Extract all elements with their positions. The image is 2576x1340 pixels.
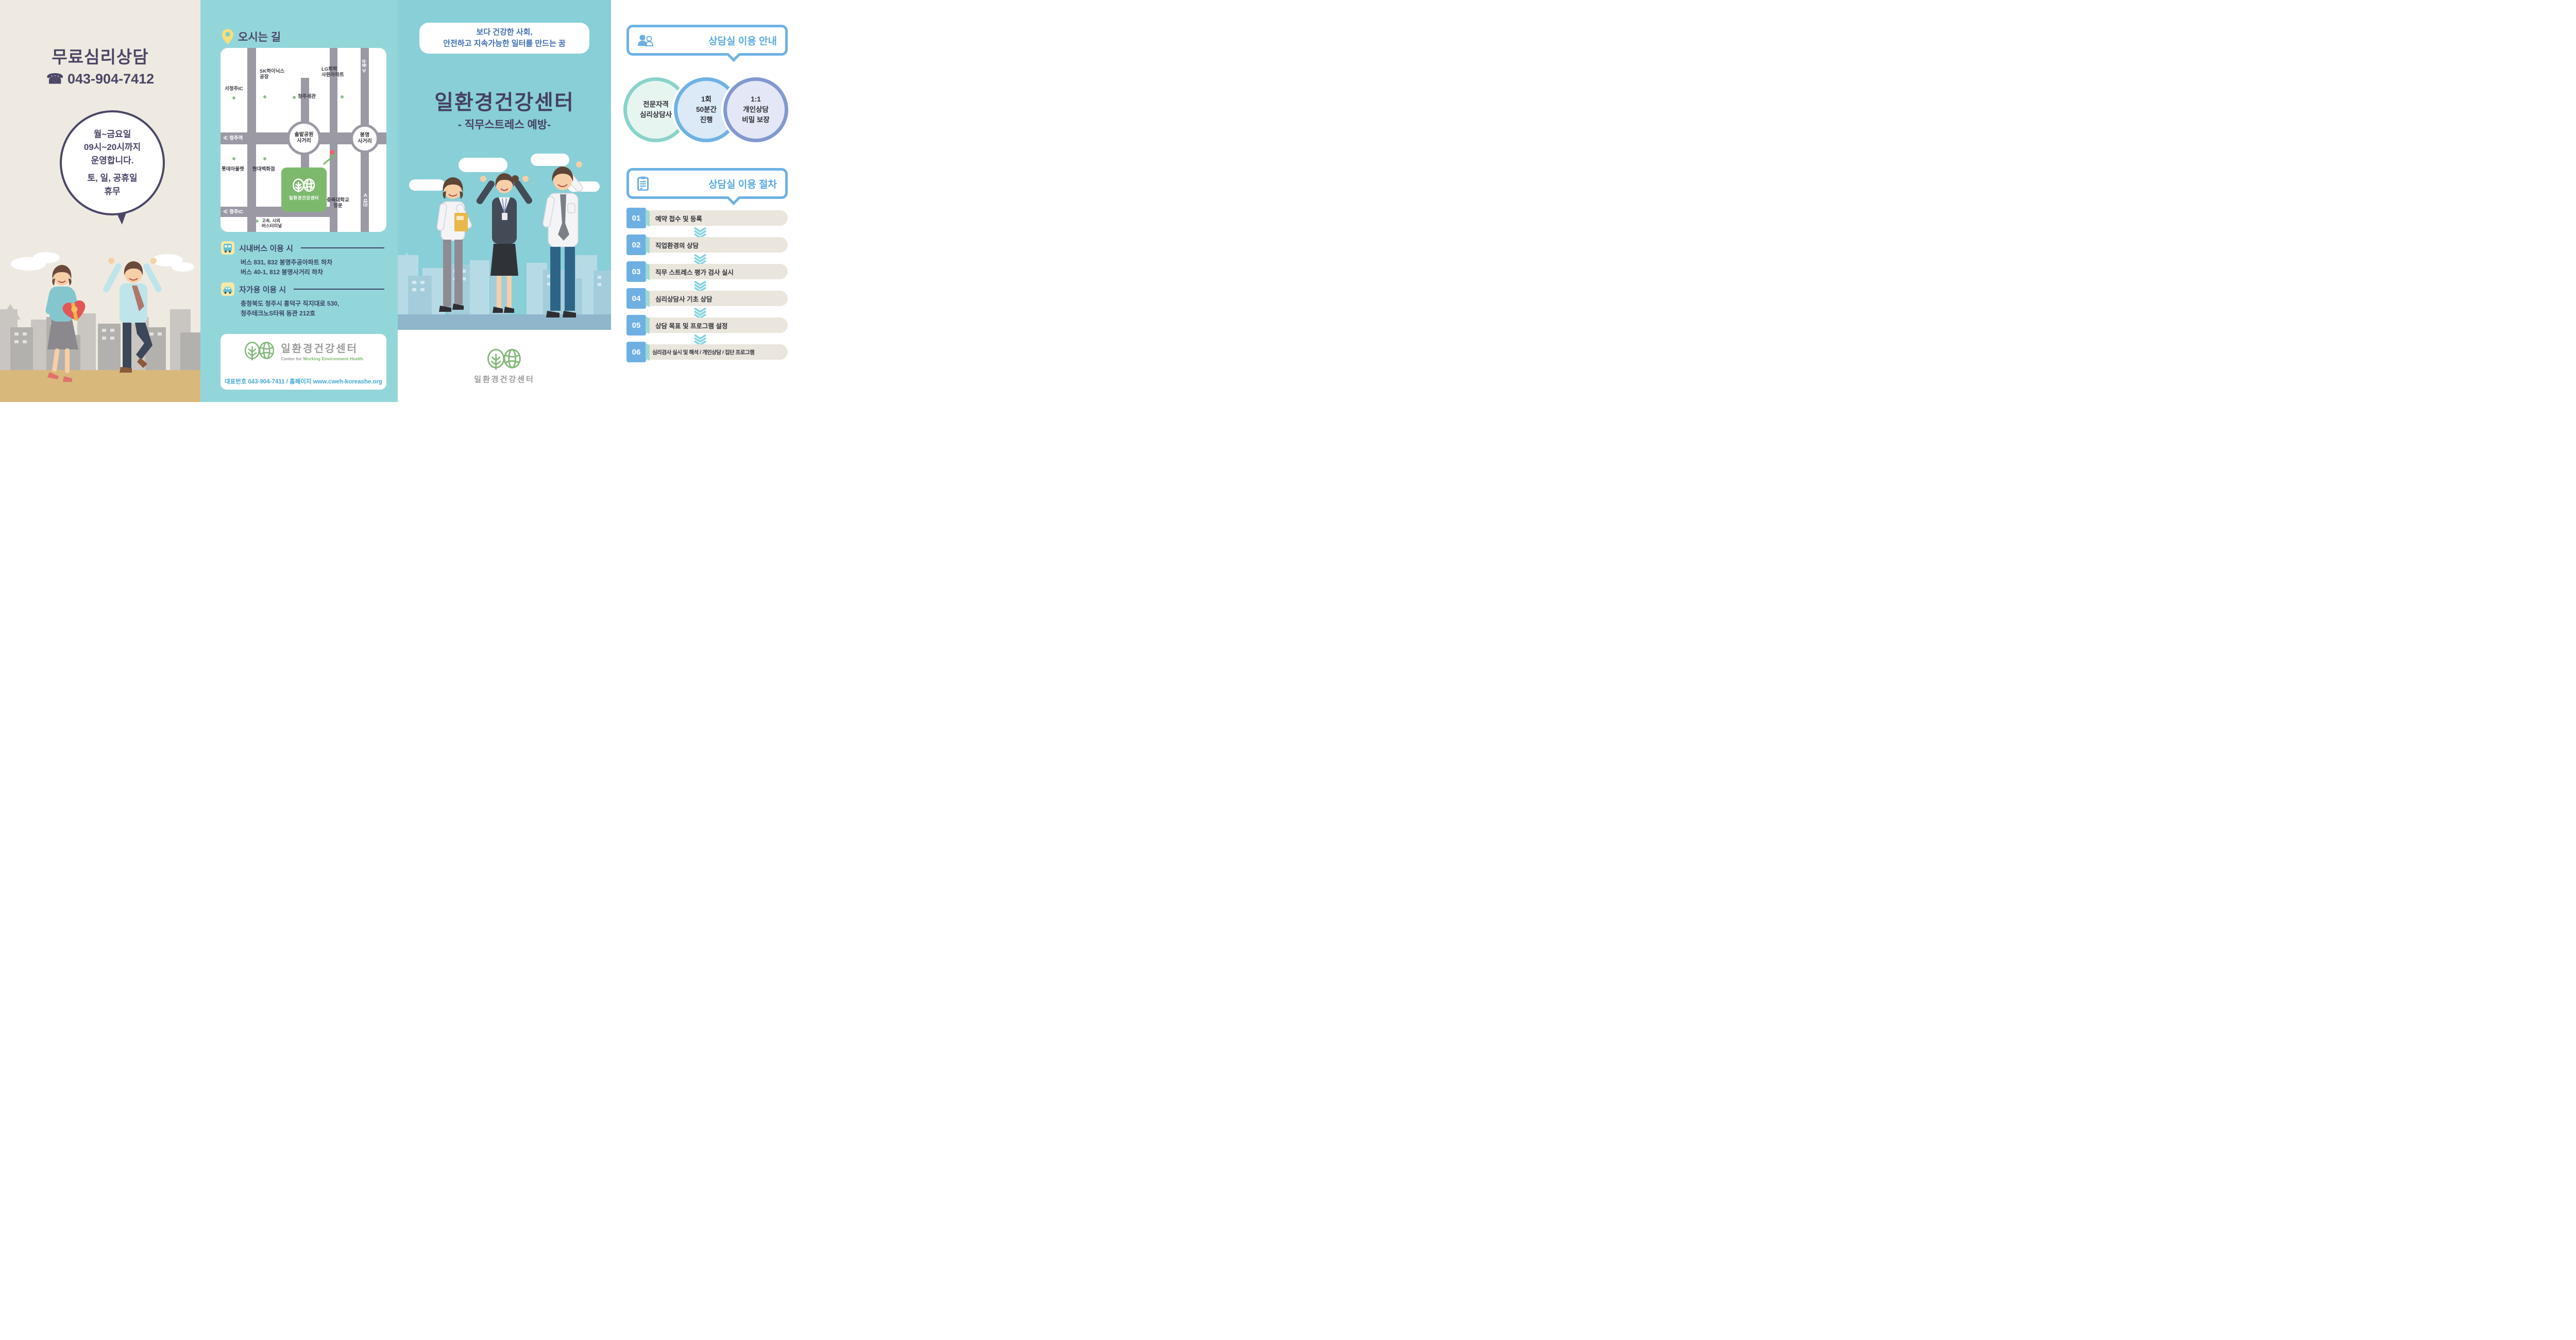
step-number-badge: 02 <box>626 234 646 255</box>
step-number-badge: 01 <box>626 208 646 228</box>
address-line: 청주테크노S타워 동관 212호 <box>241 309 315 317</box>
org-contact-line: 대표번호 043-904-7411 / 홈페이지 www.cweh-koreas… <box>221 377 386 386</box>
map-location-pin <box>330 150 334 155</box>
map-dot <box>232 157 235 160</box>
bus-info-line: 버스 831, 832 봉명주공아파트 하차 <box>241 258 332 266</box>
center-logo-icon <box>292 178 316 193</box>
chevron-down-icon <box>693 227 707 238</box>
map-label-line: 버스터미널 <box>262 223 282 228</box>
org-name-korean: 일환경건강센터 <box>281 340 363 355</box>
directions-title: 오시는 길 <box>238 29 281 44</box>
map-label-terminal: 고속. 시외 버스터미널 <box>262 218 282 228</box>
slogan-line: 보다 건강한 사회, <box>419 27 589 39</box>
map-road-direction-south: ≪ 대전 <box>361 189 368 211</box>
map-dot <box>341 95 344 98</box>
chevron-down-icon <box>693 308 707 318</box>
map-dot <box>293 96 296 99</box>
step-row-1: 예약 접수 및 등록 01 <box>626 210 788 226</box>
section-header-info: 상담실 이용 안내 <box>626 25 788 56</box>
feature-line: 비밀 보장 <box>727 115 785 125</box>
people-icon <box>637 34 654 46</box>
brochure-page: 무료심리상담 ☎ 043-904-7412 월~금요일 09시~20시까지 운영… <box>0 0 796 402</box>
org-name-english: Center for Working Environment Health <box>281 356 363 361</box>
map: ≪ 충주 ≪ 대전 ≪ 청주역 ≪ 청주IC 솔밭공원 사거리 봉명 사거리 서… <box>221 48 386 232</box>
tree-globe-logo-icon <box>486 348 522 371</box>
map-label-line: 고속. 시외 <box>262 218 282 223</box>
map-label-university: 충북대학교 정문 <box>327 197 349 209</box>
divider-line <box>301 247 384 249</box>
step-label: 예약 접수 및 등록 <box>626 210 788 226</box>
map-label-line: 공장 <box>260 74 284 80</box>
panel-directions: 오시는 길 ≪ 충주 ≪ 대전 ≪ 청주역 ≪ 청주IC 솔밭공원 사거리 봉명… <box>200 0 398 402</box>
clipboard-icon <box>637 176 649 191</box>
map-road-direction-ic: ≪ 청주IC <box>223 209 243 215</box>
tree-globe-logo-icon <box>244 341 276 361</box>
slogan-bubble: 보다 건강한 사회, 안전하고 지속가능한 일터를 만드는 꿈 <box>419 23 589 54</box>
office-workers-illustration <box>398 152 611 330</box>
chevron-down-icon <box>693 334 707 345</box>
center-title: 일환경건강센터 <box>398 86 611 115</box>
address-line: 충청북도 청주시 흥덕구 직지대로 530, <box>241 299 339 308</box>
map-dot <box>256 220 259 223</box>
free-counseling-title: 무료심리상담 <box>0 43 200 68</box>
car-section-title: 자가용 이용 시 <box>239 284 286 295</box>
car-section-header: 자가용 이용 시 <box>221 282 384 296</box>
org-logo-card: 일환경건강센터 Center for Working Environment H… <box>221 334 386 390</box>
step-row-6: 심리검사 실시 및 해석 / 개인상담 / 집단 프로그램 06 <box>626 344 788 360</box>
map-label-lotte: 롯데아울렛 <box>222 166 244 172</box>
car-icon <box>221 282 234 296</box>
map-dot <box>263 157 266 160</box>
feature-circle-privacy: 1:1 개인상담 비밀 보장 <box>723 77 788 142</box>
section-header-process: 상담실 이용 절차 <box>626 168 788 199</box>
directions-header: 오시는 길 <box>222 29 281 44</box>
map-label-line: 사원아파트 <box>321 72 344 78</box>
phone-number-text: 043-904-7412 <box>67 71 154 87</box>
step-row-3: 직무 스트레스 평가 검사 실시 03 <box>626 264 788 279</box>
intersection-label: 봉명 <box>353 132 377 139</box>
map-road-direction-station: ≪ 청주역 <box>223 136 243 141</box>
step-number-badge: 05 <box>626 315 646 336</box>
bus-info-line: 버스 40-1, 812 봉명사거리 하차 <box>241 267 323 276</box>
step-label: 직무 스트레스 평가 검사 실시 <box>626 264 788 279</box>
phone-icon: ☎ <box>46 71 64 87</box>
intersection-label: 사거리 <box>290 138 318 144</box>
hours-line: 운영합니다. <box>62 154 163 167</box>
section-title-info: 상담실 이용 안내 <box>654 33 777 47</box>
map-label-line: 충북대학교 <box>327 197 349 203</box>
map-intersection-bongmyeong: 봉명 사거리 <box>350 124 379 153</box>
cover-footer-logo: 일환경건강센터 <box>398 330 611 402</box>
panel-guide: 상담실 이용 안내 전문자격 심리상담사 1회 50분간 진행 1:1 개인상담… <box>611 0 796 402</box>
map-label-customs: 청주세관 <box>298 94 316 99</box>
bus-section-header: 시내버스 이용 시 <box>221 241 384 255</box>
step-row-2: 직업환경의 상담 02 <box>626 237 788 253</box>
step-number-badge: 06 <box>626 342 646 362</box>
hours-bubble: 월~금요일 09시~20시까지 운영합니다. 토, 일, 공휴일 휴무 <box>60 110 165 215</box>
map-label-line: 정문 <box>327 203 349 209</box>
hours-line: 토, 일, 공휴일 <box>62 172 163 185</box>
feature-line: 개인상담 <box>727 105 785 115</box>
hours-line: 월~금요일 <box>62 128 163 141</box>
intersection-label: 사거리 <box>353 139 377 145</box>
map-intersection-solbat: 솔밭공원 사거리 <box>287 121 321 155</box>
map-road-direction-north: ≪ 충주 <box>361 55 368 77</box>
phone-number: ☎ 043-904-7412 <box>0 71 200 87</box>
step-label: 직업환경의 상담 <box>626 237 788 253</box>
org-logo: 일환경건강센터 Center for Working Environment H… <box>221 340 386 361</box>
step-row-4: 심리상담사 기초 상담 04 <box>626 291 788 306</box>
map-label-sk: SK하이닉스 공장 <box>260 69 284 80</box>
section-title-process: 상담실 이용 절차 <box>649 177 777 191</box>
couple-illustration <box>0 232 200 402</box>
center-subtitle: - 직무스트레스 예방- <box>398 116 611 132</box>
slogan-line: 안전하고 지속가능한 일터를 만드는 꿈 <box>419 38 589 50</box>
cover-footer-logo-text: 일환경건강센터 <box>474 374 535 384</box>
map-label-line: SK하이닉스 <box>260 69 284 74</box>
map-label-lg: LG화학 사원아파트 <box>321 66 344 78</box>
chevron-down-icon <box>693 281 707 291</box>
step-label: 상담 목표 및 프로그램 설정 <box>626 317 788 333</box>
hours-line: 09시~20시까지 <box>62 141 163 154</box>
map-pin-icon <box>222 29 233 44</box>
map-center-marker: 일환경건강센터 <box>281 167 327 212</box>
step-number-badge: 03 <box>626 261 646 282</box>
panel-free-counseling: 무료심리상담 ☎ 043-904-7412 월~금요일 09시~20시까지 운영… <box>0 0 200 402</box>
divider-line <box>294 289 384 290</box>
chevron-down-icon <box>693 254 707 264</box>
map-dot <box>232 96 235 99</box>
map-center-marker-label: 일환경건강센터 <box>289 195 319 201</box>
panel-cover: 보다 건강한 사회, 안전하고 지속가능한 일터를 만드는 꿈 일환경건강센터 … <box>398 0 611 402</box>
bus-section-title: 시내버스 이용 시 <box>239 243 293 254</box>
map-dot <box>263 95 266 98</box>
step-label: 심리검사 실시 및 해석 / 개인상담 / 집단 프로그램 <box>626 344 788 360</box>
step-number-badge: 04 <box>626 288 646 309</box>
intersection-label: 솔밭공원 <box>290 132 318 138</box>
bus-icon <box>221 241 234 255</box>
map-label-hyundai: 현대백화점 <box>252 166 275 172</box>
step-label: 심리상담사 기초 상담 <box>626 291 788 306</box>
map-label-line: LG화학 <box>321 66 344 72</box>
feature-line: 1:1 <box>727 94 785 105</box>
map-label-seocheongju-ic: 서청주IC <box>225 86 243 92</box>
hours-line: 휴무 <box>62 185 163 198</box>
step-row-5: 상담 목표 및 프로그램 설정 05 <box>626 317 788 333</box>
